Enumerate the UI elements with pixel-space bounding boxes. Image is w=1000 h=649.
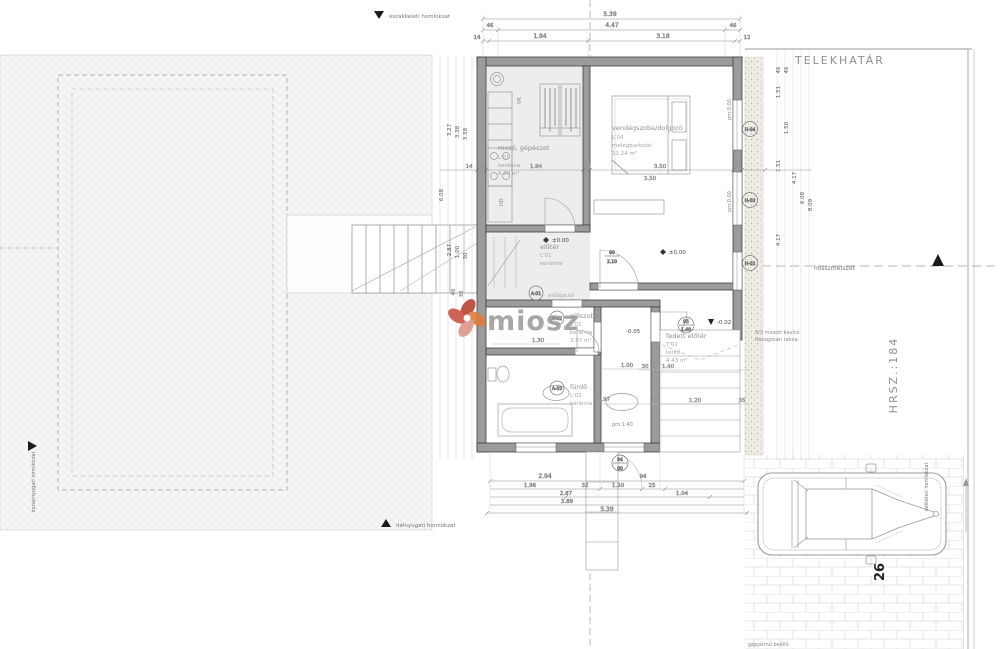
dim-h2-140: 1.40 — [662, 364, 675, 370]
dim-misc-297: 2.97 — [598, 397, 611, 403]
dim-h1-30b: 30 — [734, 164, 741, 170]
marker-a01: A-01 — [531, 291, 541, 297]
level-pm140: pm:1.40 — [612, 422, 633, 428]
dim-h2-120: 1.20 — [689, 398, 702, 404]
dim-misc-100: 1.00 — [621, 363, 634, 369]
floor-plan-sheet: 5.39 46 4.47 46 14 1.94 3.18 12 2.94 94 … — [0, 0, 1000, 649]
marker-vk: VK — [517, 97, 523, 104]
room-guest-code: L'04 — [612, 135, 624, 141]
room-hall-material: kerámia — [540, 260, 562, 267]
floor-plan-drawing: 5.39 46 4.47 46 14 1.94 3.18 12 2.94 94 … — [0, 0, 1000, 649]
room-guest-area: 11.24 m² — [612, 150, 637, 157]
section-label: hosszmetszet — [814, 265, 856, 272]
gravel-note-2: hézagosan rakva — [755, 336, 798, 343]
dim-right-417b: 4.17 — [776, 233, 782, 246]
dim-top-46b: 46 — [730, 23, 737, 29]
room-guest-name: vendégszoba/dolgozó — [612, 124, 683, 132]
dim-left-46: 46 — [451, 288, 457, 295]
room-hall-code: L'01 — [540, 253, 552, 259]
marker-h04: H-04 — [745, 127, 756, 133]
dim-bot-94: 94 — [640, 474, 647, 480]
opening-win-w: 95 — [683, 319, 689, 325]
dim-right-809: 8.09 — [808, 198, 814, 211]
room-porch-area: 4.43 m² — [666, 357, 688, 364]
dim-bot-25: 25 — [649, 483, 656, 489]
dim-left-30b: 30 — [459, 290, 465, 297]
parking-number: 26 — [873, 563, 888, 581]
opening-win2-w: 84 — [617, 457, 623, 463]
dim-top-total: 5.39 — [603, 11, 617, 18]
room-laundry-code: L'01 — [498, 155, 510, 161]
room-porch-material: térkő — [666, 349, 681, 356]
dim-top-12: 12 — [744, 35, 751, 41]
dim-left-358: 3.58 — [463, 127, 469, 140]
dim-left-338: 3.38 — [455, 125, 461, 138]
covered-porch — [660, 330, 740, 452]
dim-bot-104: 1.04 — [676, 491, 689, 497]
dim-bot-total: 5.39 — [600, 506, 614, 513]
dim-bot-196: 1.96 — [524, 483, 537, 489]
room-laundry-name: mosó, gépészet — [498, 144, 550, 152]
dim-right-150: 1.50 — [784, 121, 790, 134]
room-bath-name: fürdő — [570, 382, 587, 391]
dim-left-327: 3.27 — [447, 123, 453, 136]
dim-left-30a: 30 — [463, 252, 469, 259]
dim-guest-350: 3.50 — [644, 176, 657, 182]
level-minus05: -0.05 — [626, 329, 641, 335]
dim-right-46b: 46 — [784, 66, 790, 73]
dim-left-287: 2.87 — [447, 243, 453, 256]
dim-bot-287: 2.87 — [560, 491, 573, 497]
dim-right-151a: 1.51 — [776, 86, 782, 98]
room-bath-material: kerámia — [570, 400, 592, 407]
property-line-label: TELEKHATÁR — [794, 54, 885, 67]
dim-h1-30: 30 — [479, 164, 486, 170]
level-zero-corridor: ±0.00 — [669, 250, 686, 256]
dim-bot-294: 2.94 — [538, 473, 552, 480]
room-entry-area: 3.97 m² — [570, 337, 592, 344]
room-laundry-material: kerámia — [498, 162, 520, 169]
room-porch-code: T'01 — [665, 342, 678, 348]
car-top-view — [758, 464, 946, 564]
dim-top-447: 4.47 — [605, 22, 619, 29]
dim-top-14: 14 — [474, 35, 481, 41]
dim-top-318: 3.18 — [656, 33, 670, 40]
dim-h1-14: 14 — [466, 164, 473, 170]
dim-h1-184: 1.84 — [530, 164, 543, 170]
dimension-chain-right: 46 46 1.51 1.50 1.51 4.17 6.08 4.17 8.09 — [776, 49, 814, 460]
marker-h02: H-02 — [745, 261, 756, 267]
facade-ne-label: északkeleti homlokzat — [389, 13, 451, 20]
opening-door-h: 2.10 — [607, 259, 617, 265]
marker-a03: A-03 — [552, 386, 562, 392]
marker-h03: H-03 — [745, 198, 756, 204]
dim-left-100: 1.00 — [455, 245, 461, 258]
gravel-note-1: 5/3 mosott kavics — [755, 330, 800, 336]
parking-label: gépjármű beálló — [748, 641, 789, 648]
dim-top-194: 1.94 — [533, 33, 547, 40]
dim-right-151b: 1.51 — [776, 160, 782, 172]
facade-sw-label: délnyugati homlokzat — [396, 522, 456, 529]
dim-h1-350: 3.50 — [654, 164, 667, 170]
dim-h1-13: 13 — [584, 164, 591, 170]
dim-right-417a: 4.17 — [792, 171, 798, 184]
room-stairs-name: előlépcső — [548, 292, 575, 299]
level-zero-hall: ±0.00 — [552, 238, 569, 244]
room-guest-material: melegburkolat — [612, 143, 653, 149]
dim-h2-14: 14 — [653, 398, 660, 404]
facade-se-label: délkeleti homlokzat — [923, 463, 930, 512]
dim-right-46a: 46 — [776, 66, 782, 73]
plot-number-label: HRSZ.:184 — [887, 337, 900, 414]
dim-left-608: 6.08 — [439, 188, 445, 201]
dim-bot-150: 1.50 — [612, 483, 625, 489]
room-bath-code: L'02 — [570, 393, 582, 399]
dim-bot-389: 3.89 — [561, 499, 574, 505]
guest-room-furniture — [594, 96, 690, 214]
dim-h2-35: 35 — [739, 398, 746, 404]
dimension-chain-top: 5.39 46 4.47 46 14 1.94 3.18 12 — [474, 11, 751, 57]
watermark-text: miosz — [487, 306, 580, 337]
opening-win-h: 1.40 — [681, 327, 691, 333]
level-pm0-a: pm:0.00 — [727, 99, 733, 120]
dim-right-608: 6.08 — [800, 191, 806, 204]
level-minus02: -0.02 — [717, 320, 731, 326]
room-laundry-area: 6.60 m² — [498, 170, 520, 177]
facade-nw-label: északnyugati homlokzat — [30, 452, 37, 513]
dim-bot-32: 32 — [582, 483, 589, 489]
opening-door-w: 90 — [609, 250, 615, 256]
marker-hd: HD — [499, 198, 505, 206]
dim-top-46a: 46 — [487, 23, 494, 29]
dim-misc-130: 1.30 — [532, 338, 545, 344]
level-pm0-b: pm:0.00 — [727, 191, 733, 212]
opening-win2-h: 60 — [617, 466, 623, 472]
